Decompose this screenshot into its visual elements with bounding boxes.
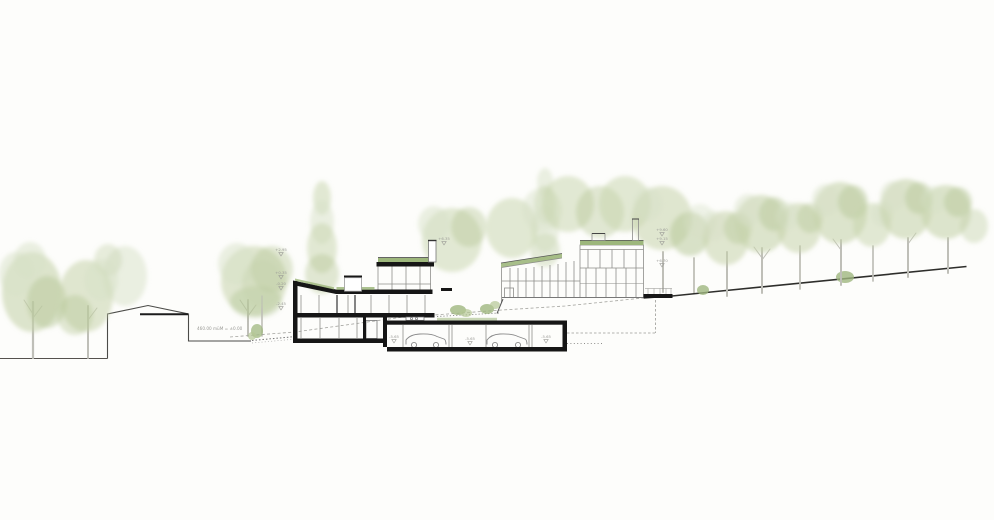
car-2-wheel [515,342,520,347]
villa-terrace-slab [644,294,673,298]
datum-label: 460.00 müM = ±0.00 [197,326,243,331]
bush [490,301,500,309]
garden-floor-slab [293,339,385,344]
right-slope-line [644,267,967,299]
chimney-a [429,241,437,263]
section-drawing: 460.00 müM = ±0.00 +2.95+0.35-0.20-2.45-… [0,0,994,520]
canopy-blob [633,187,663,221]
courtyard-green-roof [437,318,497,321]
level-marker-triangle-icon [392,340,396,343]
garage-vent-box [406,317,424,320]
level-marker-value: +9.15 [656,236,668,241]
car-1-wheel [433,342,438,347]
garage-ceiling-slab [387,321,567,325]
upper-roof-slab [377,262,435,267]
canopy-blob [451,207,487,247]
garden-storey-door [366,321,377,339]
canopy-blob [921,186,947,214]
level-marker-value: -5.65 [389,334,399,339]
car-1-wheel [411,342,416,347]
level-marker: -5.65 [389,334,399,343]
canopy-blob [84,259,118,301]
street-storey-mullions [301,295,425,313]
interior-cut-wall [363,318,366,339]
level-marker-value: -0.20 [276,281,286,286]
upper-green-roof [378,258,432,262]
street-storey-jambs [337,295,355,313]
level-marker-triangle-icon [468,342,472,345]
level-marker-value: -5.65 [541,334,551,339]
canopy-blob [14,242,46,278]
garage-floor-slab [387,347,567,352]
car-2-wheel [492,342,497,347]
back-foliage [94,168,716,336]
tree-canopy [0,242,67,332]
level-marker: -5.65 [541,334,551,343]
level-marker-value: +6.70 [656,258,668,263]
level-marker-triangle-icon [544,340,548,343]
bush [836,271,854,283]
tree [305,181,339,294]
tree [921,185,988,273]
garden-storey-mullions [301,318,357,338]
level-marker-value: -2.45 [276,301,286,306]
canopy-blob [57,295,93,335]
garage-left-wall [383,318,387,348]
canopy-blob [960,209,988,243]
level-marker: -5.65 [465,336,475,345]
drawing-canvas: 460.00 müM = ±0.00 +2.95+0.35-0.20-2.45-… [0,0,994,520]
canopy-blob [701,211,727,241]
terrace-railing-posts [648,289,671,295]
tree-canopy [305,181,339,294]
canopy-blob [734,194,762,226]
courtyard-edge-slab [441,288,452,291]
canopy-blob [812,184,840,216]
existing-house [108,306,252,359]
canopy-blob [776,202,800,230]
villa-green-roof [580,240,644,245]
wing-plinth-box [505,288,514,298]
level-marker-value: +9.60 [656,227,668,232]
approach-dotted-ground [252,339,296,343]
level-marker-value: +6.35 [438,236,450,241]
level-marker-value: -5.65 [465,336,475,341]
left-cut-wall [293,281,298,343]
garage-right-wall [563,321,568,352]
bush [697,285,709,295]
wing-mullions [510,261,574,297]
villa-mullions [586,250,636,298]
tree [0,242,67,358]
tree-canopy [921,185,988,243]
level-marker-value: +0.35 [275,270,287,275]
bush [248,332,256,340]
existing-grade-dashed-line [230,298,643,337]
canopy-blob [880,181,906,211]
bush [460,309,472,317]
terrace-box [345,278,362,292]
level-marker-value: +2.95 [275,247,287,252]
